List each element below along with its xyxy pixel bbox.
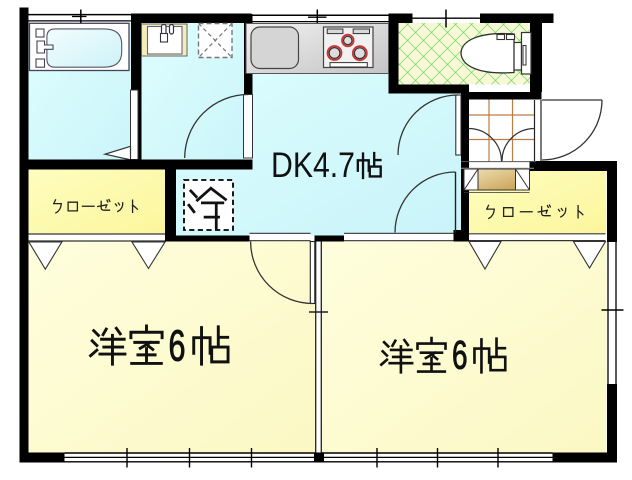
svg-text:6: 6 xyxy=(169,322,186,371)
svg-text:DK4.7: DK4.7 xyxy=(271,146,355,185)
svg-text:6: 6 xyxy=(452,334,468,378)
